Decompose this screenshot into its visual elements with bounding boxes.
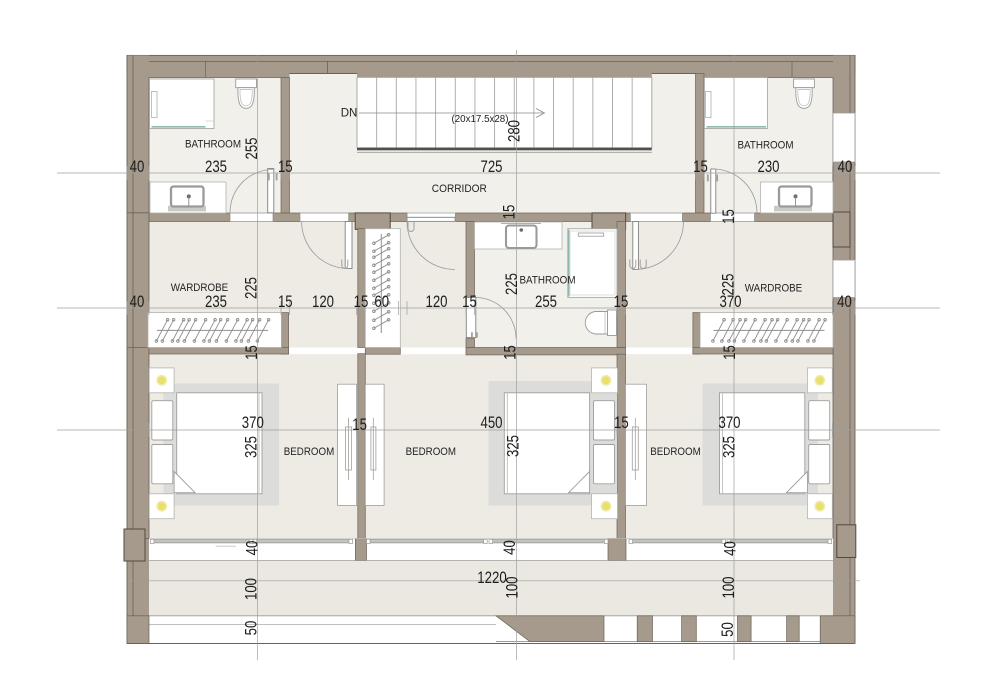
svg-text:100: 100 (720, 576, 738, 598)
svg-text:225: 225 (719, 273, 737, 295)
svg-text:225: 225 (242, 277, 260, 299)
svg-text:15: 15 (462, 293, 477, 311)
svg-text:BEDROOM: BEDROOM (650, 446, 700, 458)
svg-text:40: 40 (837, 293, 852, 311)
svg-text:15: 15 (354, 293, 369, 311)
svg-text:BATHROOM: BATHROOM (738, 140, 794, 152)
svg-text:325: 325 (720, 436, 738, 458)
svg-text:40: 40 (838, 158, 853, 176)
svg-text:CORRIDOR: CORRIDOR (432, 183, 487, 195)
svg-text:15: 15 (243, 345, 261, 360)
svg-text:120: 120 (425, 293, 447, 311)
svg-text:40: 40 (130, 158, 145, 176)
svg-text:100: 100 (243, 578, 261, 600)
svg-text:60: 60 (374, 293, 389, 311)
svg-text:50: 50 (719, 622, 737, 637)
svg-text:40: 40 (501, 540, 519, 555)
svg-text:120: 120 (312, 293, 334, 311)
svg-text:40: 40 (721, 541, 739, 556)
svg-text:450: 450 (480, 414, 502, 432)
svg-text:325: 325 (243, 436, 261, 458)
svg-text:235: 235 (205, 293, 227, 311)
svg-text:15: 15 (278, 158, 293, 176)
svg-text:15: 15 (693, 158, 708, 176)
svg-text:230: 230 (757, 158, 779, 176)
svg-text:40: 40 (130, 293, 145, 311)
svg-text:DN: DN (341, 108, 358, 120)
svg-text:BATHROOM: BATHROOM (185, 138, 241, 150)
svg-text:255: 255 (243, 137, 261, 159)
svg-text:15: 15 (352, 416, 367, 434)
svg-text:BEDROOM: BEDROOM (406, 446, 456, 458)
svg-text:280: 280 (505, 120, 523, 142)
svg-text:235: 235 (205, 158, 227, 176)
svg-text:40: 40 (243, 541, 261, 556)
svg-text:BEDROOM: BEDROOM (284, 446, 334, 458)
svg-text:1220: 1220 (477, 569, 506, 587)
svg-text:15: 15 (614, 414, 629, 432)
svg-text:50: 50 (243, 621, 261, 636)
svg-text:15: 15 (501, 345, 519, 360)
svg-text:15: 15 (500, 205, 518, 220)
svg-text:15: 15 (721, 345, 739, 360)
svg-text:BATHROOM: BATHROOM (520, 275, 576, 287)
svg-text:325: 325 (505, 435, 523, 457)
svg-text:15: 15 (278, 293, 293, 311)
svg-text:370: 370 (718, 414, 740, 432)
svg-text:15: 15 (720, 209, 738, 224)
svg-text:WARDROBE: WARDROBE (171, 282, 229, 294)
svg-text:WARDROBE: WARDROBE (745, 283, 803, 295)
svg-text:100: 100 (503, 576, 521, 598)
svg-text:725: 725 (480, 158, 502, 176)
svg-text:370: 370 (242, 414, 264, 432)
svg-text:225: 225 (503, 273, 521, 295)
svg-text:(20x17.5x28): (20x17.5x28) (452, 114, 509, 125)
svg-text:255: 255 (535, 293, 557, 311)
svg-text:15: 15 (614, 293, 629, 311)
